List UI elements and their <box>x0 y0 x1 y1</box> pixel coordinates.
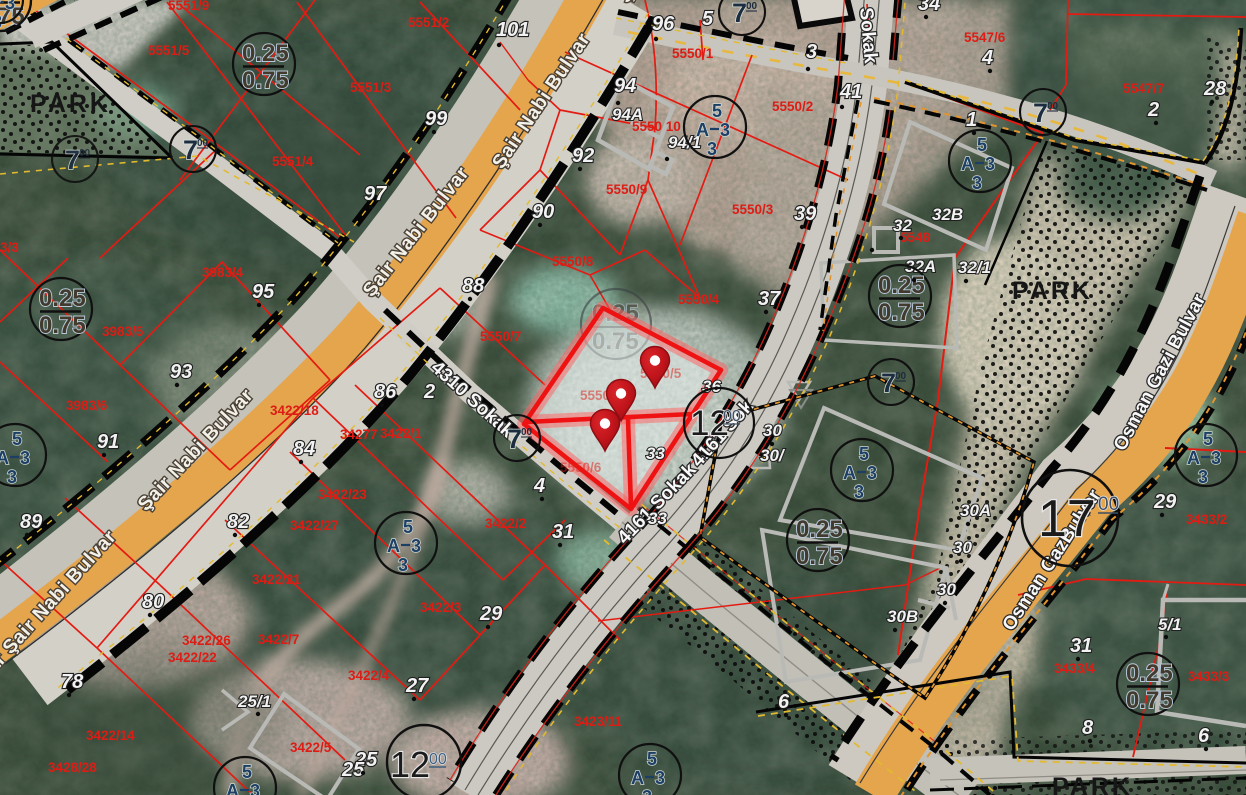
svg-text:80: 80 <box>142 591 164 613</box>
svg-text:6: 6 <box>1198 725 1210 747</box>
svg-text:3422/18: 3422/18 <box>270 403 319 418</box>
svg-text:3428/28: 3428/28 <box>48 760 97 775</box>
svg-text:31: 31 <box>1070 635 1092 657</box>
svg-text:PARK: PARK <box>1052 773 1133 795</box>
svg-text:30: 30 <box>763 421 782 440</box>
svg-text:96: 96 <box>652 13 675 35</box>
svg-text:84: 84 <box>293 438 315 460</box>
svg-text:31: 31 <box>552 521 574 543</box>
svg-text:3422/5: 3422/5 <box>290 740 332 755</box>
svg-text:5550/1: 5550/1 <box>672 46 714 61</box>
svg-text:5548: 5548 <box>900 230 931 245</box>
svg-text:30A: 30A <box>960 501 991 520</box>
svg-text:5551/5: 5551/5 <box>148 43 190 58</box>
svg-text:5550/9: 5550/9 <box>606 182 647 197</box>
svg-text:00: 00 <box>1098 494 1119 515</box>
svg-text:30B: 30B <box>887 607 918 626</box>
svg-text:3422/14: 3422/14 <box>86 728 135 743</box>
svg-text:95: 95 <box>252 281 275 303</box>
svg-text:6: 6 <box>778 691 790 713</box>
svg-text:5550/2: 5550/2 <box>772 99 813 114</box>
svg-text:30/: 30/ <box>760 446 786 465</box>
svg-text:5547/6: 5547/6 <box>964 30 1006 45</box>
svg-text:78: 78 <box>61 671 84 693</box>
svg-text:32/1: 32/1 <box>958 258 991 277</box>
svg-text:3983/5: 3983/5 <box>102 324 144 339</box>
svg-text:4: 4 <box>533 475 545 497</box>
svg-text:3422/7: 3422/7 <box>258 632 299 647</box>
svg-text:99: 99 <box>425 108 448 130</box>
svg-text:3422/3: 3422/3 <box>420 600 462 615</box>
svg-text:3422/21: 3422/21 <box>252 572 301 587</box>
svg-text:94: 94 <box>614 75 636 97</box>
svg-text:90: 90 <box>532 201 554 223</box>
svg-text:25: 25 <box>341 759 365 781</box>
svg-text:5550/6: 5550/6 <box>560 460 602 475</box>
svg-text:88: 88 <box>462 275 485 297</box>
svg-text:3983/6: 3983/6 <box>66 398 108 413</box>
svg-text:34277: 34277 <box>340 427 378 442</box>
svg-text:29: 29 <box>1153 491 1177 513</box>
svg-text:4: 4 <box>981 47 993 69</box>
svg-text:8: 8 <box>1082 717 1094 739</box>
svg-text:PARK: PARK <box>30 90 111 118</box>
svg-text:PARK: PARK <box>1012 277 1093 305</box>
svg-text:5547/7: 5547/7 <box>1123 81 1164 96</box>
svg-text:3983/4: 3983/4 <box>202 265 244 280</box>
svg-text:1: 1 <box>966 109 977 131</box>
svg-text:34: 34 <box>918 0 940 15</box>
svg-text:33: 33 <box>648 509 667 528</box>
svg-text:3433/2: 3433/2 <box>1186 512 1227 527</box>
svg-text:00: 00 <box>723 408 741 425</box>
svg-text:7: 7 <box>0 0 5 16</box>
svg-text:92: 92 <box>572 145 594 167</box>
svg-text:3422/2: 3422/2 <box>485 516 526 531</box>
svg-text:5550 10: 5550 10 <box>632 119 681 134</box>
svg-text:27: 27 <box>405 675 429 697</box>
svg-text:5551/3: 5551/3 <box>350 80 392 95</box>
svg-text:3/3: 3/3 <box>0 240 19 255</box>
svg-text:39: 39 <box>794 203 817 225</box>
svg-text:28: 28 <box>1203 78 1227 100</box>
svg-text:3423/11: 3423/11 <box>574 714 623 729</box>
svg-text:30: 30 <box>937 580 956 599</box>
svg-text:5550/7: 5550/7 <box>480 329 521 344</box>
svg-text:82: 82 <box>227 511 249 533</box>
svg-text:5550: 5550 <box>580 388 610 403</box>
svg-text:5550/3: 5550/3 <box>732 202 774 217</box>
svg-text:89: 89 <box>20 511 43 533</box>
svg-text:41: 41 <box>839 81 862 103</box>
svg-text:2: 2 <box>423 381 435 403</box>
svg-text:5551/4: 5551/4 <box>272 154 314 169</box>
svg-text:3433/3: 3433/3 <box>1188 669 1230 684</box>
svg-text:3422/23: 3422/23 <box>318 487 367 502</box>
svg-text:5: 5 <box>702 8 714 30</box>
svg-text:3433/4: 3433/4 <box>1054 661 1096 676</box>
svg-text:5550/8: 5550/8 <box>552 254 594 269</box>
svg-text:3422/4: 3422/4 <box>348 668 390 683</box>
svg-text:91: 91 <box>97 431 119 453</box>
svg-text:3422/22: 3422/22 <box>168 650 217 665</box>
svg-text:33: 33 <box>646 444 665 463</box>
svg-text:86: 86 <box>374 381 397 403</box>
svg-text:5/1: 5/1 <box>1158 615 1182 634</box>
svg-text:36: 36 <box>702 377 721 396</box>
svg-text:93: 93 <box>170 361 192 383</box>
svg-text:3422/26: 3422/26 <box>182 633 231 648</box>
svg-text:12: 12 <box>390 744 430 785</box>
svg-text:29: 29 <box>479 603 503 625</box>
svg-text:00: 00 <box>429 751 447 768</box>
svg-text:97: 97 <box>364 183 387 205</box>
svg-text:3: 3 <box>5 0 15 13</box>
svg-text:5551/2: 5551/2 <box>408 15 449 30</box>
svg-text:37: 37 <box>758 288 781 310</box>
svg-text:3422/1: 3422/1 <box>380 426 422 441</box>
svg-text:25/1: 25/1 <box>237 692 271 711</box>
svg-text:17: 17 <box>1038 490 1096 548</box>
svg-text:5551/9: 5551/9 <box>168 0 209 13</box>
svg-text:5550/4: 5550/4 <box>678 292 720 307</box>
svg-text:32B: 32B <box>932 205 963 224</box>
svg-text:101: 101 <box>496 19 529 41</box>
svg-text:30: 30 <box>953 538 972 557</box>
svg-text:3422/27: 3422/27 <box>290 518 339 533</box>
svg-text:2: 2 <box>1147 99 1159 121</box>
svg-text:3: 3 <box>806 41 817 63</box>
